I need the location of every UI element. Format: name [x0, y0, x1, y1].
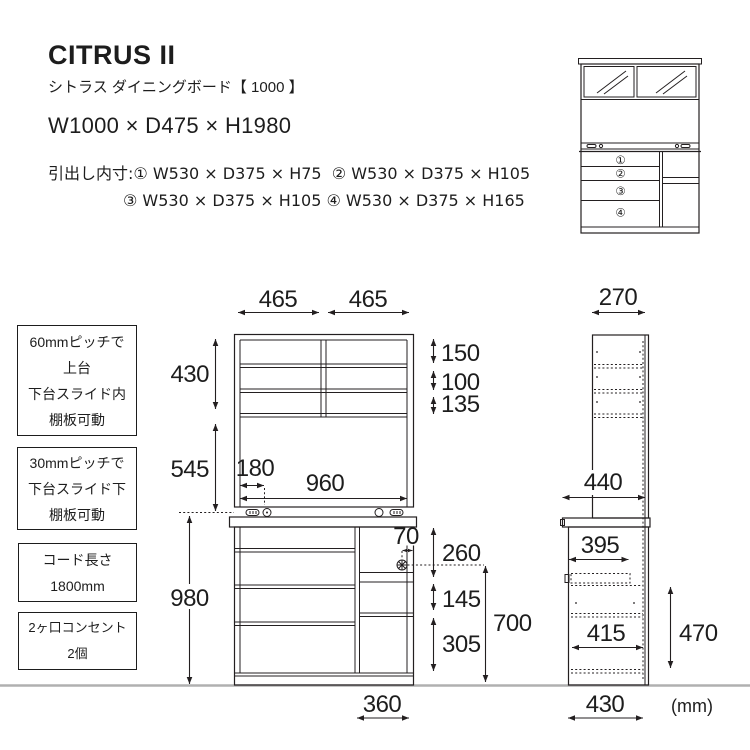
outlet-icon — [246, 509, 271, 517]
side-view-dimensions: 270 440 395 415 470 430 — [563, 284, 718, 718]
thumb-drawer-3-label: ③ — [615, 184, 625, 198]
dim-front-middle-height: 545 — [170, 456, 209, 483]
glass-door-icon — [637, 67, 696, 98]
dim-front-counter-to-hook: 260 — [442, 540, 481, 567]
outlet-icon — [587, 144, 603, 147]
dim-side-upper-inner-depth: 395 — [581, 532, 620, 559]
dim-front-lower-door-height: 305 — [442, 631, 481, 658]
dim-front-shelf-gap-top: 150 — [441, 340, 480, 367]
hook-icon — [397, 560, 407, 570]
dim-front-hook-to-floor: 700 — [493, 610, 532, 637]
front-view-dimensions: 465 465 430 545 980 150 100 135 180 960 — [170, 286, 531, 718]
thumbnail-diagram: ① ② ③ ④ — [579, 59, 702, 234]
dim-front-upper-height: 430 — [170, 361, 209, 388]
spec-sheet: CITRUS II シトラス ダイニングボード【 1000 】 W1000 × … — [0, 0, 750, 750]
outlet-icon — [675, 144, 690, 147]
dim-front-right-section-width: 360 — [363, 691, 402, 718]
dim-front-outlet-offset: 180 — [236, 455, 275, 482]
dim-front-inner-width: 960 — [306, 470, 345, 497]
thumb-drawer-2-label: ② — [615, 167, 625, 181]
dim-front-top-width-right: 465 — [349, 286, 388, 313]
dim-front-top-width-left: 465 — [259, 286, 298, 313]
dim-front-shelf-gap-bottom: 135 — [441, 391, 480, 418]
dimension-drawing: ① ② ③ ④ — [0, 0, 750, 750]
glass-door-icon — [584, 67, 634, 98]
dim-front-lower-height: 980 — [170, 585, 209, 612]
dim-front-niche-height: 145 — [442, 586, 481, 613]
outlet-icon — [375, 509, 403, 517]
dim-front-hook-offset: 70 — [393, 523, 419, 550]
thumb-drawer-4-label: ④ — [615, 206, 625, 220]
dim-side-upper-depth: 270 — [599, 284, 638, 311]
dim-side-counter-depth: 440 — [584, 469, 623, 496]
dim-side-floor-depth: 430 — [586, 691, 625, 718]
dim-side-lower-height: 470 — [679, 620, 718, 647]
dim-side-lower-inner-depth: 415 — [587, 620, 626, 647]
thumb-drawer-1-label: ① — [615, 153, 625, 167]
unit-label: (mm) — [671, 696, 713, 716]
